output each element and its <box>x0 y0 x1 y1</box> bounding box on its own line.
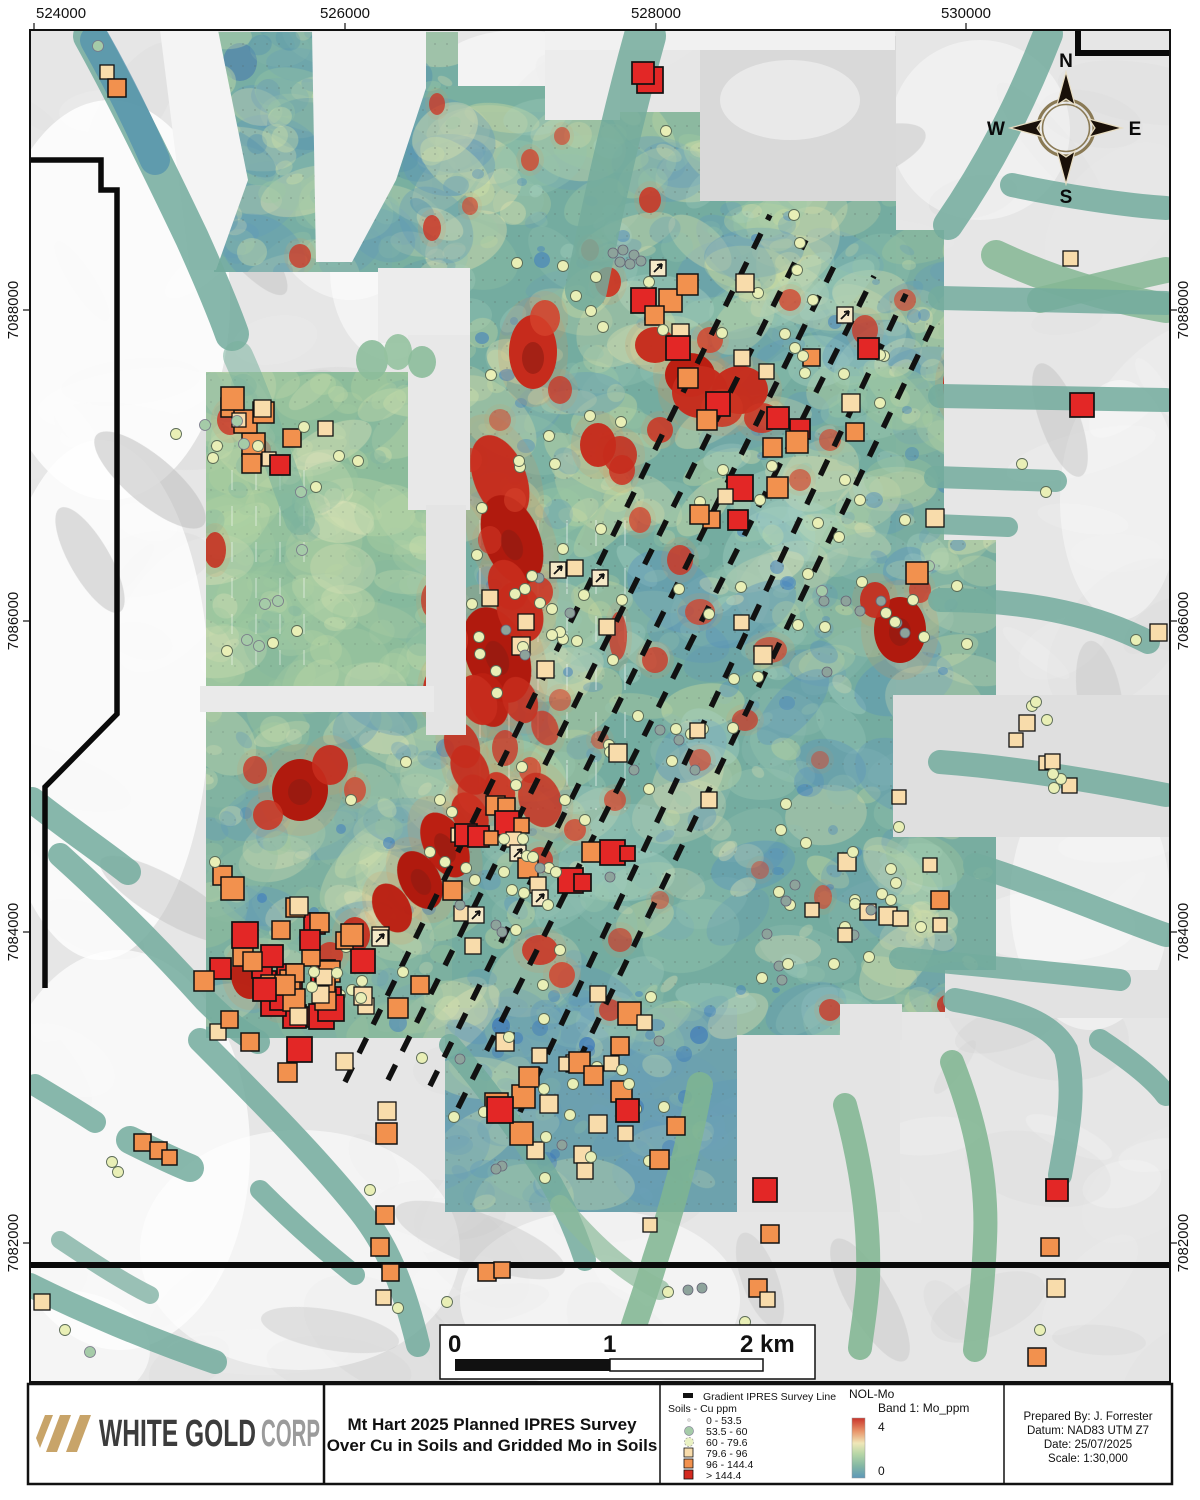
svg-text:Over Cu in Soils and Gridded M: Over Cu in Soils and Gridded Mo in Soils <box>327 1436 658 1455</box>
svg-text:7082000: 7082000 <box>1175 1214 1192 1272</box>
svg-text:1: 1 <box>603 1331 616 1358</box>
svg-text:Soils - Cu ppm: Soils - Cu ppm <box>668 1403 737 1415</box>
svg-text:N: N <box>1059 51 1073 72</box>
svg-text:7086000: 7086000 <box>1175 592 1192 650</box>
svg-text:E: E <box>1129 119 1142 140</box>
svg-text:Gradient IPRES Survey Line: Gradient IPRES Survey Line <box>703 1391 836 1403</box>
svg-text:528000: 528000 <box>631 5 681 22</box>
svg-text:Datum: NAD83 UTM Z7: Datum: NAD83 UTM Z7 <box>1027 1425 1149 1437</box>
svg-text:> 144.4: > 144.4 <box>706 1470 741 1482</box>
svg-text:7086000: 7086000 <box>5 592 22 650</box>
svg-text:S: S <box>1060 187 1073 208</box>
svg-text:Mt Hart 2025 Planned IPRES Sur: Mt Hart 2025 Planned IPRES Survey <box>347 1415 637 1434</box>
svg-text:W: W <box>987 119 1005 140</box>
svg-text:0: 0 <box>448 1331 461 1358</box>
svg-text:526000: 526000 <box>320 5 370 22</box>
svg-text:7088000: 7088000 <box>1175 281 1192 339</box>
svg-text:2 km: 2 km <box>740 1331 795 1358</box>
svg-text:524000: 524000 <box>36 5 86 22</box>
svg-text:Date: 25/07/2025: Date: 25/07/2025 <box>1044 1439 1132 1451</box>
svg-text:7084000: 7084000 <box>5 903 22 961</box>
svg-text:WHITE GOLD: WHITE GOLD <box>99 1413 256 1455</box>
svg-text:0: 0 <box>878 1464 885 1478</box>
svg-text:Scale: 1:30,000: Scale: 1:30,000 <box>1048 1453 1128 1465</box>
svg-text:NOL-Mo: NOL-Mo <box>849 1387 895 1401</box>
svg-text:Prepared By: J. Forrester: Prepared By: J. Forrester <box>1023 1411 1152 1423</box>
svg-text:4: 4 <box>878 1420 885 1434</box>
svg-text:7088000: 7088000 <box>5 281 22 339</box>
svg-text:7084000: 7084000 <box>1175 903 1192 961</box>
svg-text:Band 1: Mo_ppm: Band 1: Mo_ppm <box>878 1401 969 1415</box>
svg-text:7082000: 7082000 <box>5 1214 22 1272</box>
svg-text:530000: 530000 <box>941 5 991 22</box>
svg-text:CORP: CORP <box>261 1413 320 1455</box>
